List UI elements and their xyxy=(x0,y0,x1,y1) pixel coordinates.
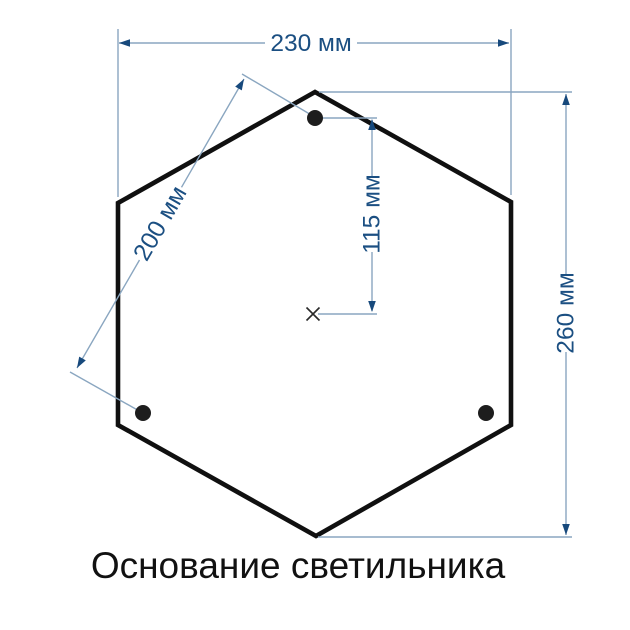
arrowhead-up-icon xyxy=(562,94,570,105)
technical-drawing-page: 230 мм 260 мм 115 мм 200 мм xyxy=(0,0,630,630)
mounting-hole-right xyxy=(478,405,494,421)
mounting-hole-top xyxy=(307,110,323,126)
arrowhead-down-icon xyxy=(562,524,570,535)
hexagon-outline xyxy=(118,92,511,536)
arrowhead-right-icon xyxy=(498,39,509,47)
arrowhead-upper-icon xyxy=(235,79,244,90)
arrowhead-left-icon xyxy=(119,39,130,47)
dimension-width-label: 230 мм xyxy=(270,30,351,57)
extension-line-top xyxy=(242,74,313,116)
arrowhead-lower-icon xyxy=(77,357,86,368)
dimension-hole-offset-label: 115 мм xyxy=(359,174,386,254)
dimension-height-label: 260 мм xyxy=(553,272,580,353)
lamp-base-drawing: 230 мм 260 мм 115 мм 200 мм xyxy=(0,0,630,630)
mounting-hole-left xyxy=(135,405,151,421)
drawing-title: Основание светильника xyxy=(91,545,506,586)
